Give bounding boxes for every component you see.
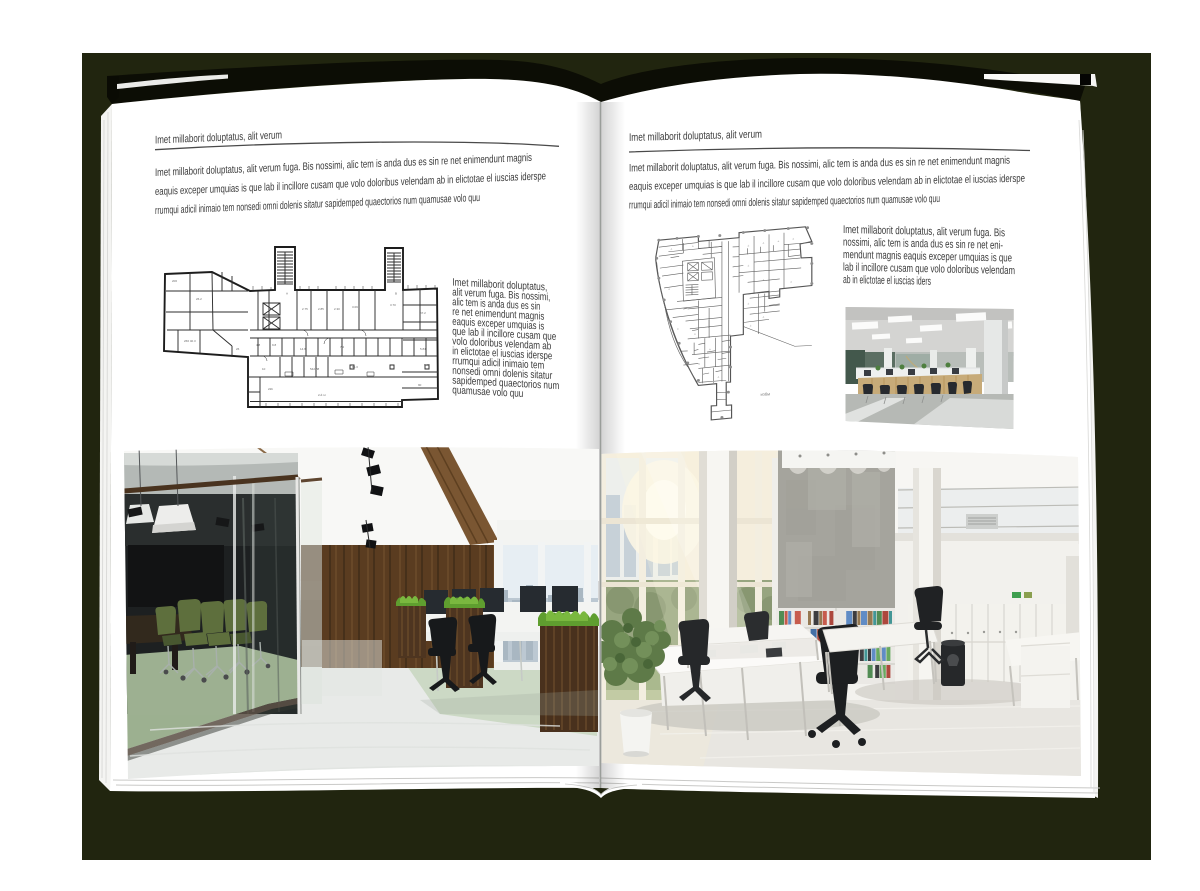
svg-text:2-й эт: 2-й эт	[318, 393, 327, 397]
svg-text:3.70: 3.70	[390, 303, 396, 307]
svg-text:2.75: 2.75	[302, 307, 308, 311]
svg-text:A: A	[286, 292, 288, 296]
svg-text:542.88: 542.88	[310, 367, 320, 371]
svg-text:избм: избм	[760, 391, 770, 396]
svg-text:4.8: 4.8	[256, 343, 261, 347]
svg-text:5.43: 5.43	[424, 363, 430, 367]
svg-text:86.3: 86.3	[352, 365, 358, 369]
svg-text:26: 26	[236, 347, 240, 351]
svg-text:7.2: 7.2	[340, 345, 345, 349]
svg-text:26.2: 26.2	[196, 297, 202, 301]
svg-text:22b: 22b	[268, 387, 273, 391]
svg-text:B: B	[395, 292, 397, 296]
svg-text:ab in elictotae el iuscias ide: ab in elictotae el iuscias iders	[843, 274, 931, 288]
svg-text:9.8: 9.8	[272, 343, 277, 347]
svg-text:57.2: 57.2	[420, 311, 426, 315]
svg-text:2.30: 2.30	[334, 307, 340, 311]
svg-text:14.6: 14.6	[300, 347, 306, 351]
svg-text:90: 90	[418, 383, 422, 387]
svg-text:2.85: 2.85	[318, 307, 324, 311]
svg-text:266 40.3: 266 40.3	[184, 339, 196, 343]
svg-text:10: 10	[262, 367, 266, 371]
svg-text:5.84: 5.84	[420, 347, 426, 351]
svg-text:206: 206	[172, 279, 177, 283]
svg-text:3.09: 3.09	[352, 305, 358, 309]
